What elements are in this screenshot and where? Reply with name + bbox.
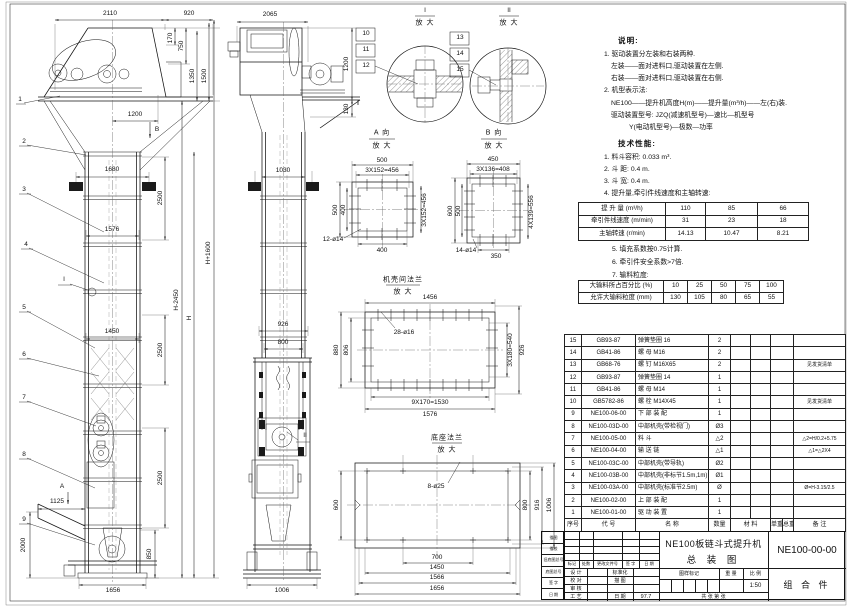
detail-i-leader-10: 10 [362, 31, 369, 38]
parts-list-table: 15GB93-87弹簧垫圈 162 14GB41-86螺 母 M162 13GB… [564, 334, 846, 532]
margin-block: 描图 描校 旧底图总号 底图总号 签 字 日 期 [541, 531, 564, 600]
dim-926: 926 [278, 322, 289, 329]
bom-qty: △1 [709, 445, 731, 457]
bom-header-remark: 备 注 [794, 519, 846, 531]
bom-qty: 1 [709, 507, 731, 519]
detail-i-linework [356, 16, 463, 126]
view-a-subtitle: 放 大 [373, 143, 392, 150]
capacity-speed-table: 提 升 量 (m³/h) 110 85 66 牵引件线速度 (m/min) 31… [578, 202, 809, 241]
dim-1006: 1006 [275, 588, 289, 595]
dim-2500b: 2500 [158, 343, 165, 357]
bom-seq: 8 [565, 421, 582, 433]
bom-seq: 5 [565, 457, 582, 469]
bom-header-row: 序号 代 号 名 称 数量 材 料 单重 总重 备 注 [565, 519, 846, 531]
note-1: 1. 驱动装置分左装和右装两种. [604, 51, 695, 58]
tech-2: 2. 斗 距: 0.4 m. [604, 166, 650, 173]
tech-4: 4. 提升量,牵引件线速度和主轴转速: [604, 190, 711, 197]
spec1-row-label: 牵引件线速度 (m/min) [579, 215, 666, 228]
flange-dim-540: 3X180=540 [508, 333, 515, 366]
bom-code: GB41-86 [582, 384, 636, 396]
flange-view-linework [338, 285, 522, 413]
bom-code: NE100-05-00 [582, 433, 636, 445]
detail-i-subtitle: 放 大 [416, 20, 435, 27]
bom-name: 螺 栓 M14X45 [636, 396, 709, 408]
flange-dim-1576: 1576 [423, 412, 437, 419]
bom-name: 螺 母 M16 [636, 347, 709, 359]
margin-row-0: 描图 [542, 532, 565, 543]
bom-qty: △2 [709, 433, 731, 445]
leader-2: 2 [22, 139, 26, 146]
bom-name: 中部机壳(带检视门) [636, 421, 709, 433]
leader-3: 3 [22, 187, 26, 194]
spec2-cell: 130 [664, 292, 688, 304]
view-a-dim-500-top: 500 [377, 158, 388, 165]
spec1-cell: 23 [706, 215, 758, 228]
sign-date-label: 日 期 [607, 592, 633, 601]
bom-seq: 6 [565, 445, 582, 457]
drawing-title-line2: 总 装 图 [659, 551, 768, 566]
view-a-dim-500-left: 500 [333, 205, 340, 216]
spec1-cell: 14.13 [666, 228, 706, 241]
dim-h: H [187, 316, 194, 321]
bom-qty: 2 [709, 335, 731, 347]
tech-1: 1. 料斗容积: 0.033 m³. [604, 154, 671, 161]
bom-remark [794, 457, 846, 469]
bom-name: 中部机壳(非标节1.5m,1m) [636, 470, 709, 482]
dim-750: 750 [179, 41, 186, 52]
margin-row-2: 旧底图总号 [542, 554, 565, 566]
bom-name: 下 部 装 配 [636, 408, 709, 420]
view-a-linework [336, 139, 422, 248]
dim-1200: 1200 [128, 112, 142, 119]
sheet-count: 共 张 第 张 [659, 592, 768, 601]
flange-dim-806: 806 [344, 345, 351, 356]
leader-6: 6 [22, 352, 26, 359]
revision-header-mark: 标记 [565, 560, 579, 568]
bom-name: 弹簧垫圈 14 [636, 371, 709, 383]
bom-code: NE100-02-00 [582, 494, 636, 506]
bom-seq: 15 [565, 335, 582, 347]
base-holes: 8-ø25 [428, 484, 445, 491]
view-b-dim-556: 4X139=556 [529, 195, 536, 228]
note-2b: 驱动装置型号: JZQ(减速机型号)—速比—机型号 [611, 112, 754, 119]
bom-seq: 13 [565, 359, 582, 371]
drawing-number: NE100-00-00 [768, 532, 846, 568]
detail-ii-leader-14: 14 [456, 51, 463, 58]
flange-view-title: 机壳间法兰 [383, 277, 423, 284]
dim-1500: 1500 [202, 69, 209, 83]
detail-i-leader-12: 12 [362, 63, 369, 70]
detail-ii-leader-15: 15 [456, 67, 463, 74]
bom-header-seq: 序号 [565, 519, 582, 531]
bom-remark [794, 507, 846, 519]
base-dim-1656: 1656 [430, 586, 444, 593]
bom-name: 中部机壳(带导轨) [636, 457, 709, 469]
view-b-title: B 向 [486, 130, 503, 137]
bom-code: NE100-03B-00 [582, 470, 636, 482]
dim-1656: 1656 [106, 588, 120, 595]
view-b-dim-408: 3X136=408 [476, 167, 509, 174]
spec1-cell: 85 [706, 203, 758, 216]
dim-h-plus-1600: H+1600 [206, 242, 213, 265]
note-2c: Y(电动机型号)—极数—功率 [629, 124, 713, 131]
dim-2000: 2000 [21, 538, 28, 552]
engineering-drawing-sheet: 2110 920 170 750 1350 1500 1200 1680 250… [0, 0, 850, 609]
dim-850: 850 [147, 549, 154, 560]
base-view-linework [338, 443, 556, 596]
base-view-title: 底座法兰 [431, 435, 463, 442]
bom-name: 螺 钉 M16X65 [636, 359, 709, 371]
bom-code: NE100-03C-00 [582, 457, 636, 469]
view-b-dim-350: 350 [491, 254, 502, 261]
sign-process-label: 工 艺 [565, 592, 587, 601]
flange-dim-1456: 1456 [423, 295, 437, 302]
view-a-holes: 12-ø14 [323, 237, 344, 244]
flange-dim-926: 926 [520, 345, 527, 356]
dim-1680: 1680 [105, 167, 119, 174]
dim-920: 920 [184, 11, 195, 18]
dim-1125: 1125 [50, 499, 64, 506]
bom-code: GB41-86 [582, 347, 636, 359]
view-b-dim-600: 600 [448, 206, 455, 217]
bom-seq: 9 [565, 408, 582, 420]
bom-remark: Ø=H-3.15/2.5 [794, 482, 846, 494]
bom-name: 驱 动 装 置 [636, 507, 709, 519]
leader-8: 8 [22, 452, 26, 459]
detail-i-leader-11: 11 [363, 47, 370, 54]
tech-heading: 技术性能: [618, 140, 656, 148]
bom-code: GB93-87 [582, 335, 636, 347]
notes-heading: 说明: [618, 37, 639, 45]
bom-seq: 4 [565, 470, 582, 482]
base-dim-916: 916 [535, 500, 542, 511]
view-b-holes: 14-ø14 [456, 248, 477, 255]
spec2-cell: 25 [688, 281, 712, 293]
front-view-linework [38, 20, 213, 582]
detail-i-marker: I [63, 277, 65, 284]
section-a-marker: A [60, 484, 64, 491]
bom-qty: 2 [709, 347, 731, 359]
base-dim-1450: 1450 [430, 565, 444, 572]
dim-1576: 1576 [105, 227, 119, 234]
base-dim-800: 800 [523, 500, 530, 511]
spec2-row-label: 大输料所占百分比 (%) [579, 281, 664, 293]
base-dim-700: 700 [432, 555, 443, 562]
spec1-cell: 110 [666, 203, 706, 216]
base-view-subtitle: 放 大 [438, 447, 457, 454]
side-view-linework [228, 22, 360, 582]
bom-name: 弹簧垫圈 16 [636, 335, 709, 347]
base-dim-600: 600 [334, 500, 341, 511]
view-a-dim-456-top: 3X152=456 [365, 168, 398, 175]
note-1a: 左装——面对进料口,驱动装置在左侧. [611, 63, 724, 70]
section-b-marker: B [155, 127, 159, 134]
detail-ii-linework [450, 16, 546, 124]
bom-seq: 3 [565, 482, 582, 494]
sign-audit-label: 审 核 [565, 584, 587, 592]
leader-7: 7 [22, 395, 26, 402]
bom-header-qty: 数量 [709, 519, 731, 531]
dim-2500a: 2500 [158, 191, 165, 205]
bom-header-total-weight: 总重 [783, 519, 794, 531]
bom-qty: Ø1 [709, 470, 731, 482]
spec2-cell: 100 [760, 281, 784, 293]
base-dim-1006: 1006 [547, 498, 554, 512]
margin-row-5: 日 期 [542, 588, 565, 601]
scale-value: 1:50 [743, 579, 768, 592]
sign-date-value: 97.7 [633, 592, 659, 601]
bom-header-material: 材 料 [731, 519, 771, 531]
bom-header-name: 名 称 [636, 519, 709, 531]
bom-seq: 1 [565, 507, 582, 519]
bom-seq: 11 [565, 384, 582, 396]
bom-remark: 见发货清单 [794, 396, 846, 408]
leader-4: 4 [24, 242, 28, 249]
tech-3: 3. 斗 宽: 0.4 m. [604, 178, 650, 185]
dim-2500c: 2500 [158, 471, 165, 485]
view-a-title: A 向 [374, 130, 390, 137]
spec2-cell: 50 [712, 281, 736, 293]
sign-trace-label: 描 图 [607, 576, 633, 584]
view-a-dim-456-right: 3X152=456 [422, 193, 429, 226]
spec2-cell: 10 [664, 281, 688, 293]
scale-label: 比 例 [743, 568, 768, 579]
detail-ii-title: II [507, 8, 511, 15]
bom-remark [794, 470, 846, 482]
dim-1450: 1450 [105, 329, 119, 336]
leader-5: 5 [22, 305, 26, 312]
spec1-row-label: 主轴转速 (r/min) [579, 228, 666, 241]
bom-seq: 14 [565, 347, 582, 359]
bom-qty: Ø2 [709, 457, 731, 469]
bom-code: NE100-03D-00 [582, 421, 636, 433]
dim-2065: 2065 [263, 12, 277, 19]
dim-1030: 1030 [276, 168, 290, 175]
bom-qty: 1 [709, 371, 731, 383]
bom-name: 螺 母 M14 [636, 384, 709, 396]
sign-design-label: 设 计 [565, 568, 587, 576]
bom-code: NE100-01-00 [582, 507, 636, 519]
bom-remark [794, 384, 846, 396]
dim-h-minus-2450: H-2450 [174, 289, 181, 310]
base-dim-1566: 1566 [430, 575, 444, 582]
lump-size-table: 大输料所占百分比 (%) 10 25 50 75 100 允许大输料粒度 (mm… [578, 280, 784, 304]
revision-header-date: 日 期 [639, 560, 659, 568]
revision-header-docno: 更改文件号 [593, 560, 622, 568]
part-type: 组 合 件 [768, 568, 846, 601]
detail-ii-subtitle: 放 大 [500, 20, 519, 27]
bom-name: 料 斗 [636, 433, 709, 445]
note-2a: NE100——提升机高度H(m)——提升量(m³/h)——左(右)装. [611, 100, 787, 107]
detail-ii-marker: II [303, 433, 307, 440]
spec1-cell: 18 [758, 215, 809, 228]
detail-i-title: I [424, 8, 426, 15]
leader-1: 1 [18, 97, 22, 104]
bom-remark [794, 335, 846, 347]
dim-170: 170 [168, 33, 175, 44]
bom-remark: △2=H/0.2+5.75 [794, 433, 846, 445]
bom-qty: Ø3 [709, 421, 731, 433]
view-b-dim-450: 450 [488, 157, 499, 164]
note-2: 2. 机型表示法: [604, 87, 647, 94]
bom-seq: 10 [565, 396, 582, 408]
spec1-row-label: 提 升 量 (m³/h) [579, 203, 666, 216]
spec2-cell: 75 [736, 281, 760, 293]
tech-6: 6. 牵引件安全系数>7倍. [612, 259, 684, 266]
bom-remark [794, 371, 846, 383]
spec2-cell: 65 [736, 292, 760, 304]
view-b-dim-500: 500 [456, 206, 463, 217]
weight-label: 重 量 [719, 568, 743, 579]
margin-row-4: 签 字 [542, 577, 565, 588]
view-a-dim-400-bottom: 400 [377, 248, 388, 255]
bom-remark: △1=△2X4 [794, 445, 846, 457]
spec1-cell: 66 [758, 203, 809, 216]
margin-row-1: 描校 [542, 543, 565, 554]
bom-remark [794, 408, 846, 420]
margin-row-3: 底图总号 [542, 566, 565, 577]
leader-9: 9 [22, 517, 26, 524]
drawing-title-line1: NE100板链斗式提升机 [659, 535, 768, 551]
spec1-cell: 8.21 [758, 228, 809, 241]
note-1b: 右装——面对进料口,驱动装置在右侧. [611, 75, 724, 82]
bom-qty: 1 [709, 494, 731, 506]
bom-code: GB93-87 [582, 371, 636, 383]
side-view-dimensions [237, 22, 360, 589]
bom-qty: Ø [709, 482, 731, 494]
sign-check-label: 校 对 [565, 576, 587, 584]
bom-header-code: 代 号 [582, 519, 636, 531]
flange-view-subtitle: 放 大 [394, 289, 413, 296]
bom-code: GB68-76 [582, 359, 636, 371]
stamp-label: 图样标记 [659, 568, 719, 579]
bom-qty: 2 [709, 359, 731, 371]
bom-name: 上 部 装 配 [636, 494, 709, 506]
flange-dim-880: 880 [334, 345, 341, 356]
revision-header-signature: 签 字 [622, 560, 639, 568]
bom-seq: 12 [565, 371, 582, 383]
bom-name: 中部机壳(标准节2.5m) [636, 482, 709, 494]
spec2-cell: 105 [688, 292, 712, 304]
view-b-subtitle: 放 大 [485, 143, 504, 150]
dim-800: 800 [278, 340, 289, 347]
bom-qty: 1 [709, 408, 731, 420]
sign-standard-label: 标准化 [607, 568, 633, 576]
bom-code: NE100-06-00 [582, 408, 636, 420]
revision-header-count: 处数 [579, 560, 593, 568]
bom-code: GB5782-86 [582, 396, 636, 408]
spec2-cell: 55 [760, 292, 784, 304]
dim-130: 130 [344, 104, 351, 115]
dim-2110: 2110 [103, 11, 117, 18]
spec1-cell: 31 [666, 215, 706, 228]
bom-seq: 7 [565, 433, 582, 445]
bom-remark [794, 347, 846, 359]
dim-1350: 1350 [190, 69, 197, 83]
bom-remark [794, 494, 846, 506]
bom-code: NE100-04-00 [582, 445, 636, 457]
tech-7: 7. 输料粒度: [612, 272, 649, 279]
title-block: 标记 处数 更改文件号 签 字 日 期 设 计 标准化 校 对 描 图 审 核 … [564, 531, 845, 600]
bom-name: 输 送 链 [636, 445, 709, 457]
detail-ii-leader-13: 13 [456, 35, 463, 42]
view-a-dim-400-left: 400 [341, 205, 348, 216]
spec2-cell: 80 [712, 292, 736, 304]
flange-dim-1530: 9X170=1530 [411, 400, 448, 407]
spec1-cell: 10.47 [706, 228, 758, 241]
flange-holes: 28-ø16 [394, 330, 415, 337]
bom-qty: 1 [709, 396, 731, 408]
bom-seq: 2 [565, 494, 582, 506]
tech-5: 5. 填充系数按0.75计算. [612, 246, 682, 253]
bom-header-unit-weight: 单重 [771, 519, 783, 531]
bom-remark [794, 421, 846, 433]
dim-side-1200: 1200 [344, 57, 351, 71]
spec2-row-label: 允许大输料粒度 (mm) [579, 292, 664, 304]
bom-code: NE100-03A-00 [582, 482, 636, 494]
bom-qty: 1 [709, 384, 731, 396]
bom-remark: 见发货清单 [794, 359, 846, 371]
